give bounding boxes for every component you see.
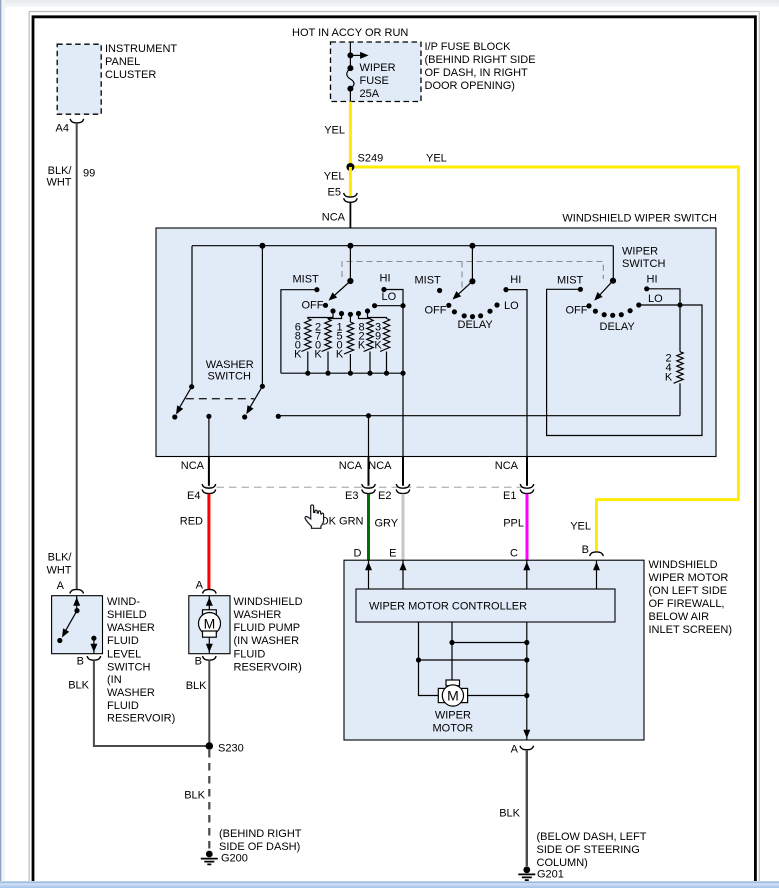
svg-text:BLK: BLK xyxy=(499,808,520,820)
svg-text:I/P FUSE BLOCK: I/P FUSE BLOCK xyxy=(425,41,512,53)
svg-text:FLUID: FLUID xyxy=(107,700,139,712)
svg-text:K: K xyxy=(294,349,302,361)
svg-text:DELAY: DELAY xyxy=(458,319,494,331)
svg-text:WIPER: WIPER xyxy=(622,246,658,258)
svg-text:OFF: OFF xyxy=(302,299,324,311)
svg-text:A4: A4 xyxy=(56,123,69,135)
svg-text:YEL: YEL xyxy=(324,125,345,137)
svg-text:BELOW AIR: BELOW AIR xyxy=(649,611,710,623)
svg-text:WASHER: WASHER xyxy=(107,687,155,699)
svg-text:B: B xyxy=(77,656,84,668)
svg-text:K: K xyxy=(314,349,322,361)
svg-text:OFF: OFF xyxy=(566,304,588,316)
svg-text:HI: HI xyxy=(380,273,391,285)
svg-text:BLK: BLK xyxy=(68,680,89,692)
svg-text:OFF: OFF xyxy=(425,304,447,316)
svg-text:BLK: BLK xyxy=(186,680,207,692)
svg-text:WASHER: WASHER xyxy=(206,359,254,371)
svg-text:M: M xyxy=(447,688,459,704)
svg-text:FUSE: FUSE xyxy=(360,75,389,87)
svg-text:HI: HI xyxy=(510,274,521,286)
svg-text:DOOR OPENING): DOOR OPENING) xyxy=(425,80,515,92)
svg-text:99: 99 xyxy=(83,167,95,179)
svg-text:E5: E5 xyxy=(328,187,341,199)
svg-text:E2: E2 xyxy=(378,490,391,502)
svg-text:MOTOR: MOTOR xyxy=(433,723,474,735)
svg-text:G200: G200 xyxy=(221,853,248,865)
svg-text:B: B xyxy=(195,656,202,668)
svg-text:NCA: NCA xyxy=(181,460,205,472)
svg-text:NCA: NCA xyxy=(495,460,519,472)
svg-text:(BEHIND RIGHT SIDE: (BEHIND RIGHT SIDE xyxy=(425,54,536,66)
svg-text:WINDSHIELD: WINDSHIELD xyxy=(649,559,718,571)
svg-text:WASHER: WASHER xyxy=(107,622,155,634)
svg-text:DELAY: DELAY xyxy=(600,321,636,333)
svg-text:FLUID: FLUID xyxy=(107,635,139,647)
svg-text:INLET SCREEN): INLET SCREEN) xyxy=(649,624,733,636)
svg-text:E3: E3 xyxy=(345,490,358,502)
svg-text:HI: HI xyxy=(647,274,658,286)
svg-text:WASHER: WASHER xyxy=(234,609,282,621)
svg-text:K: K xyxy=(336,349,344,361)
svg-text:E1: E1 xyxy=(503,490,516,502)
svg-text:NCA: NCA xyxy=(322,211,346,223)
svg-text:WIPER: WIPER xyxy=(435,710,471,722)
svg-text:D: D xyxy=(354,548,362,560)
svg-text:COLUMN): COLUMN) xyxy=(537,857,588,869)
svg-text:K: K xyxy=(358,340,366,352)
svg-text:MIST: MIST xyxy=(415,275,442,287)
svg-text:A: A xyxy=(196,580,204,592)
svg-text:WHT: WHT xyxy=(46,176,71,188)
svg-text:GRY: GRY xyxy=(375,518,399,530)
svg-text:WIND-: WIND- xyxy=(107,596,140,608)
svg-text:DK GRN: DK GRN xyxy=(321,516,364,528)
svg-text:YEL: YEL xyxy=(324,171,345,183)
svg-text:RED: RED xyxy=(180,516,203,528)
svg-text:OF FIREWALL,: OF FIREWALL, xyxy=(649,598,725,610)
svg-text:WINDSHIELD WIPER SWITCH: WINDSHIELD WIPER SWITCH xyxy=(562,213,717,225)
svg-text:LEVEL: LEVEL xyxy=(107,649,141,661)
svg-text:PPL: PPL xyxy=(503,518,524,530)
svg-text:LO: LO xyxy=(382,291,397,303)
svg-text:S230: S230 xyxy=(218,743,244,755)
svg-text:SWITCH: SWITCH xyxy=(107,662,150,674)
svg-text:BLK/: BLK/ xyxy=(48,552,73,564)
svg-text:25A: 25A xyxy=(360,88,380,100)
svg-text:S249: S249 xyxy=(358,153,384,165)
svg-text:RESERVOIR): RESERVOIR) xyxy=(107,713,175,725)
svg-text:C: C xyxy=(510,548,518,560)
svg-text:SWITCH: SWITCH xyxy=(208,371,251,383)
svg-text:B: B xyxy=(582,544,589,556)
svg-text:FLUID PUMP: FLUID PUMP xyxy=(234,622,301,634)
svg-text:M: M xyxy=(204,616,216,632)
svg-text:WIPER: WIPER xyxy=(360,62,396,74)
svg-text:SHIELD: SHIELD xyxy=(107,609,147,621)
svg-text:FLUID: FLUID xyxy=(234,649,266,661)
svg-text:A: A xyxy=(511,744,519,756)
svg-text:(BELOW DASH, LEFT: (BELOW DASH, LEFT xyxy=(537,831,647,843)
svg-text:G201: G201 xyxy=(537,869,564,881)
svg-text:BLK/: BLK/ xyxy=(48,165,73,177)
svg-text:SIDE OF STEERING: SIDE OF STEERING xyxy=(537,844,640,856)
svg-text:YEL: YEL xyxy=(570,521,591,533)
svg-text:(ON LEFT SIDE: (ON LEFT SIDE xyxy=(649,585,728,597)
svg-text:CLUSTER: CLUSTER xyxy=(105,69,156,81)
svg-text:A: A xyxy=(57,580,65,592)
svg-text:WIPER MOTOR: WIPER MOTOR xyxy=(649,572,729,584)
svg-text:K: K xyxy=(665,372,673,384)
svg-text:SIDE OF DASH): SIDE OF DASH) xyxy=(219,841,300,853)
svg-text:E: E xyxy=(389,548,396,560)
svg-text:MIST: MIST xyxy=(293,274,320,286)
svg-text:WINDSHIELD: WINDSHIELD xyxy=(234,596,303,608)
svg-text:PANEL: PANEL xyxy=(105,56,140,68)
svg-text:RESERVOIR): RESERVOIR) xyxy=(234,662,302,674)
svg-text:OF DASH, IN RIGHT: OF DASH, IN RIGHT xyxy=(425,67,529,79)
svg-text:(IN WASHER: (IN WASHER xyxy=(234,635,300,647)
svg-text:MIST: MIST xyxy=(557,275,584,287)
svg-text:(IN: (IN xyxy=(107,674,122,686)
svg-text:NCA: NCA xyxy=(368,460,392,472)
svg-text:INSTRUMENT: INSTRUMENT xyxy=(105,43,177,55)
svg-text:(BEHIND RIGHT: (BEHIND RIGHT xyxy=(219,828,302,840)
svg-text:LO: LO xyxy=(648,293,663,305)
svg-text:SWITCH: SWITCH xyxy=(622,258,665,270)
svg-text:K: K xyxy=(374,340,382,352)
svg-text:WIPER MOTOR CONTROLLER: WIPER MOTOR CONTROLLER xyxy=(369,601,527,613)
svg-text:E4: E4 xyxy=(187,490,200,502)
svg-text:YEL: YEL xyxy=(426,153,447,165)
svg-text:NCA: NCA xyxy=(339,460,363,472)
svg-text:HOT IN ACCY OR RUN: HOT IN ACCY OR RUN xyxy=(292,27,408,39)
svg-text:LO: LO xyxy=(504,300,519,312)
svg-text:WHT: WHT xyxy=(46,565,71,577)
svg-text:BLK: BLK xyxy=(184,790,205,802)
